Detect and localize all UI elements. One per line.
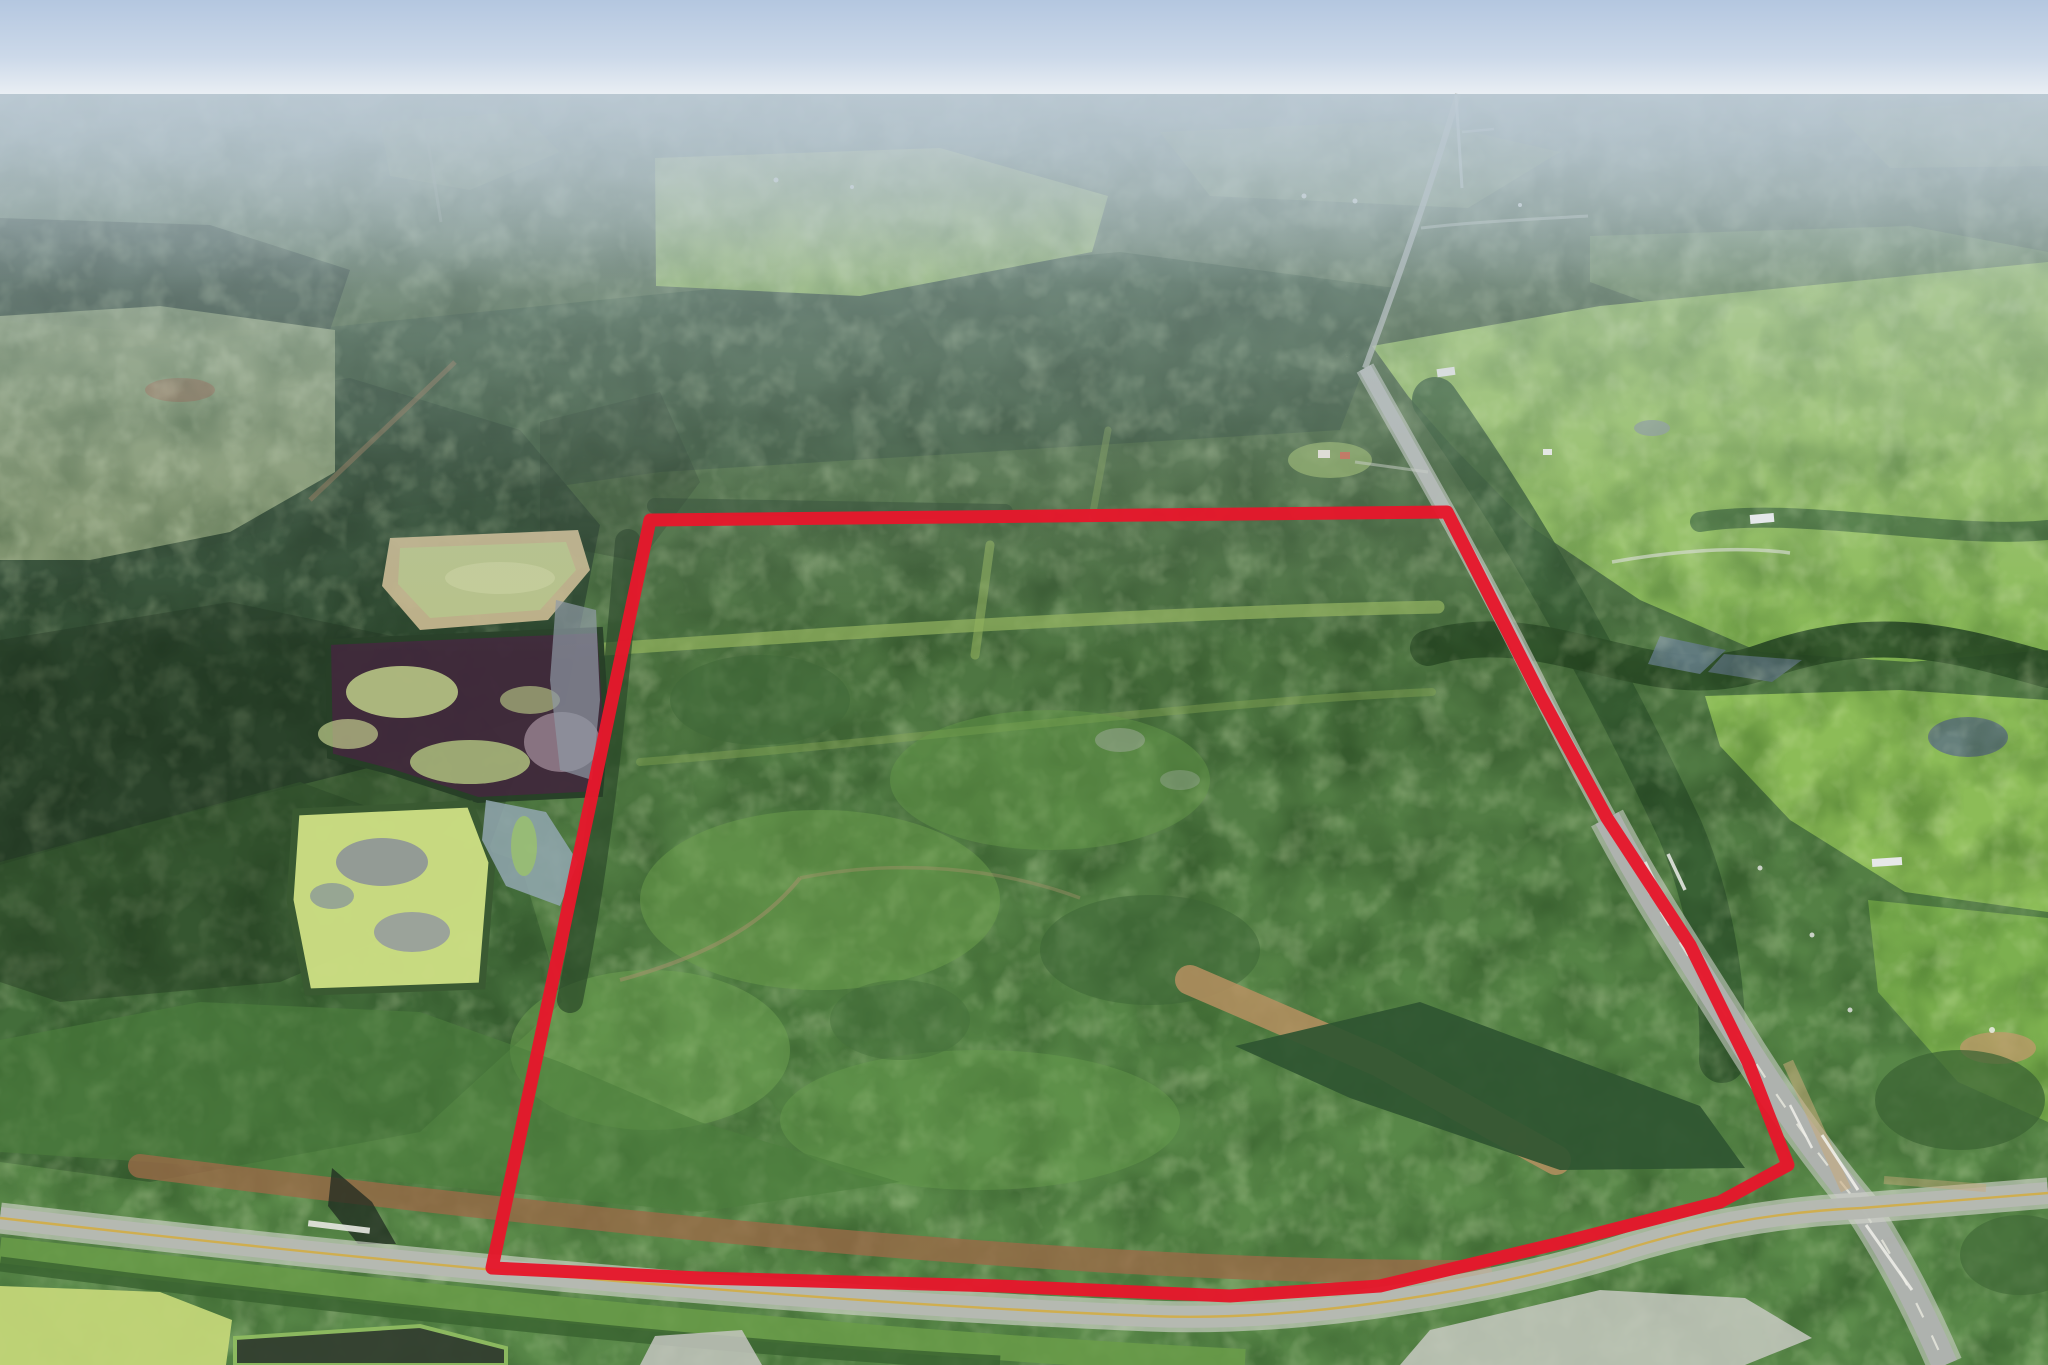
lower-pond-open-water-3	[310, 883, 354, 909]
channel-algae-streak	[511, 816, 537, 876]
middle-pond-algae-4	[500, 686, 560, 714]
sand-patch-object	[1989, 1027, 1995, 1033]
dead-tree-grey-1	[1095, 728, 1145, 752]
scrub-patch-1	[640, 810, 1000, 990]
tree-clump-1	[670, 655, 850, 745]
power-pole-3	[1848, 1008, 1853, 1013]
sky	[0, 0, 2048, 96]
horizon-haze	[0, 94, 2048, 284]
trees-east-of-intersection	[1875, 1050, 2045, 1150]
middle-pond-algae-2	[410, 740, 530, 784]
aerial-photo	[0, 0, 2048, 1365]
power-pole-1	[1758, 866, 1763, 871]
dead-tree-grey-2	[1160, 770, 1200, 790]
power-pole-2	[1810, 933, 1815, 938]
lower-pond-open-water-1	[336, 838, 428, 886]
lower-pond-open-water-2	[374, 912, 450, 952]
tree-clump-3	[830, 980, 970, 1060]
middle-pond-algae-3	[318, 719, 378, 749]
screenshot-root: Oblique aerial drone photo of rural timb…	[0, 0, 2048, 1365]
middle-pond-algae-1	[346, 666, 458, 718]
